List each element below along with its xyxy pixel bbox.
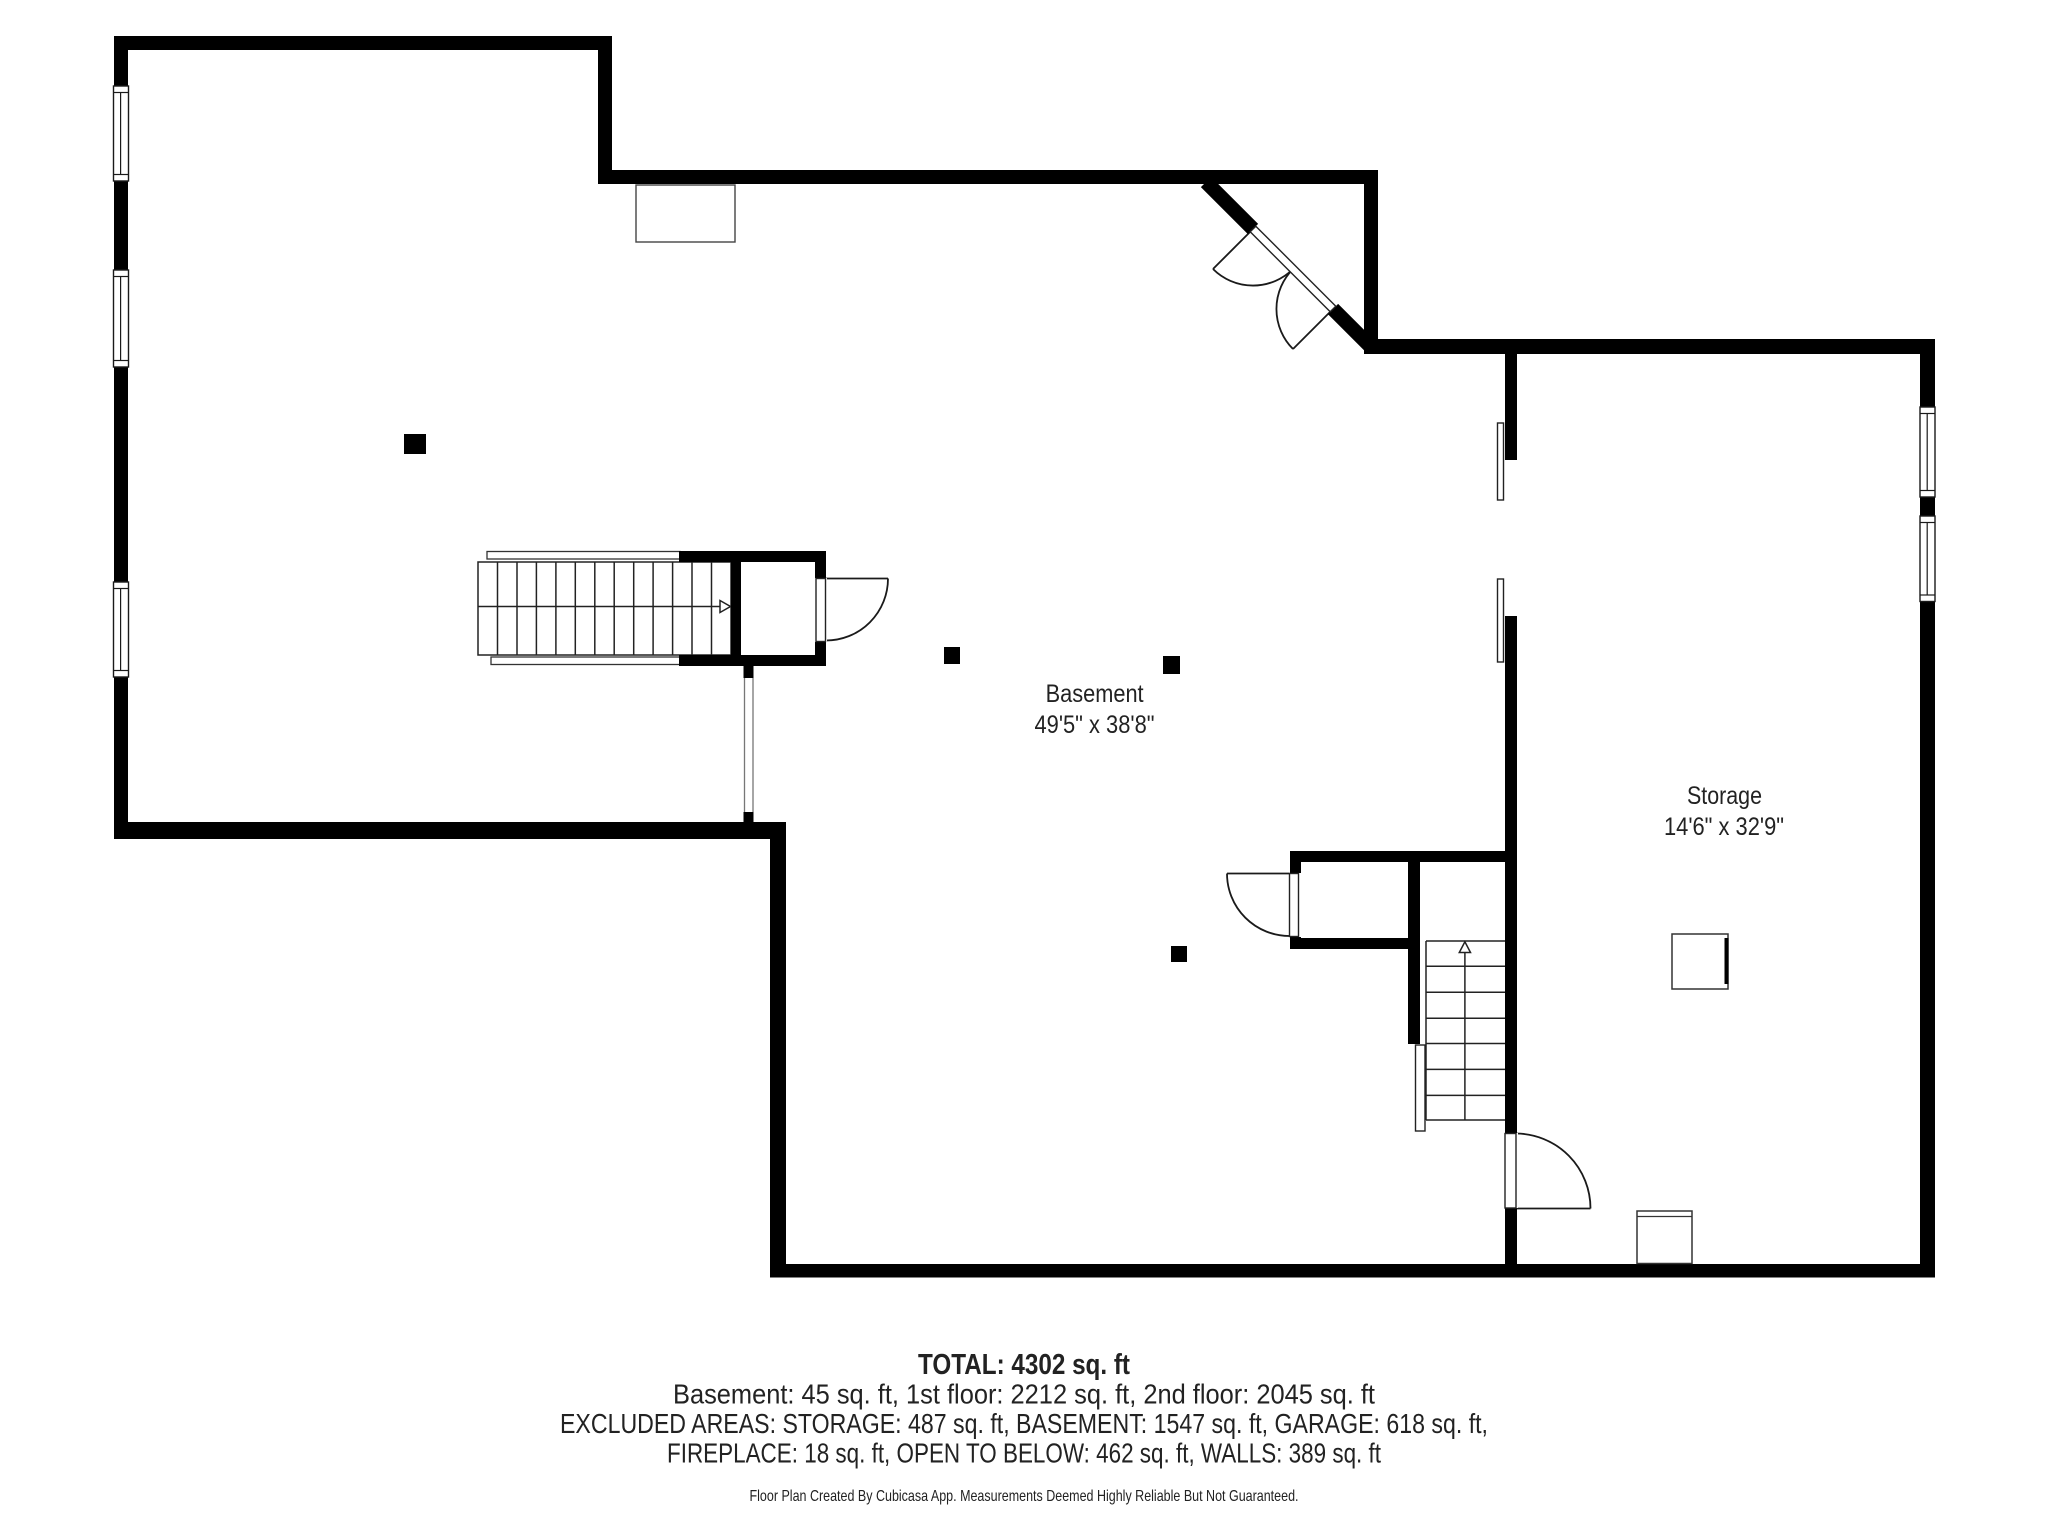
- svg-text:Basement: Basement: [1046, 680, 1144, 708]
- svg-text:Basement: 45 sq. ft, 1st floor: Basement: 45 sq. ft, 1st floor: 2212 sq.…: [673, 1378, 1375, 1409]
- svg-text:EXCLUDED AREAS: STORAGE: 487 s: EXCLUDED AREAS: STORAGE: 487 sq. ft, BAS…: [560, 1408, 1488, 1439]
- svg-text:49'5" x 38'8": 49'5" x 38'8": [1035, 711, 1155, 739]
- svg-text:TOTAL: 4302 sq. ft: TOTAL: 4302 sq. ft: [918, 1349, 1130, 1381]
- svg-text:Storage: Storage: [1687, 782, 1762, 810]
- svg-text:FIREPLACE: 18 sq. ft, OPEN TO: FIREPLACE: 18 sq. ft, OPEN TO BELOW: 462…: [667, 1437, 1381, 1468]
- svg-text:Floor Plan Created By Cubicasa: Floor Plan Created By Cubicasa App. Meas…: [750, 1488, 1299, 1505]
- svg-text:14'6" x 32'9": 14'6" x 32'9": [1664, 813, 1784, 841]
